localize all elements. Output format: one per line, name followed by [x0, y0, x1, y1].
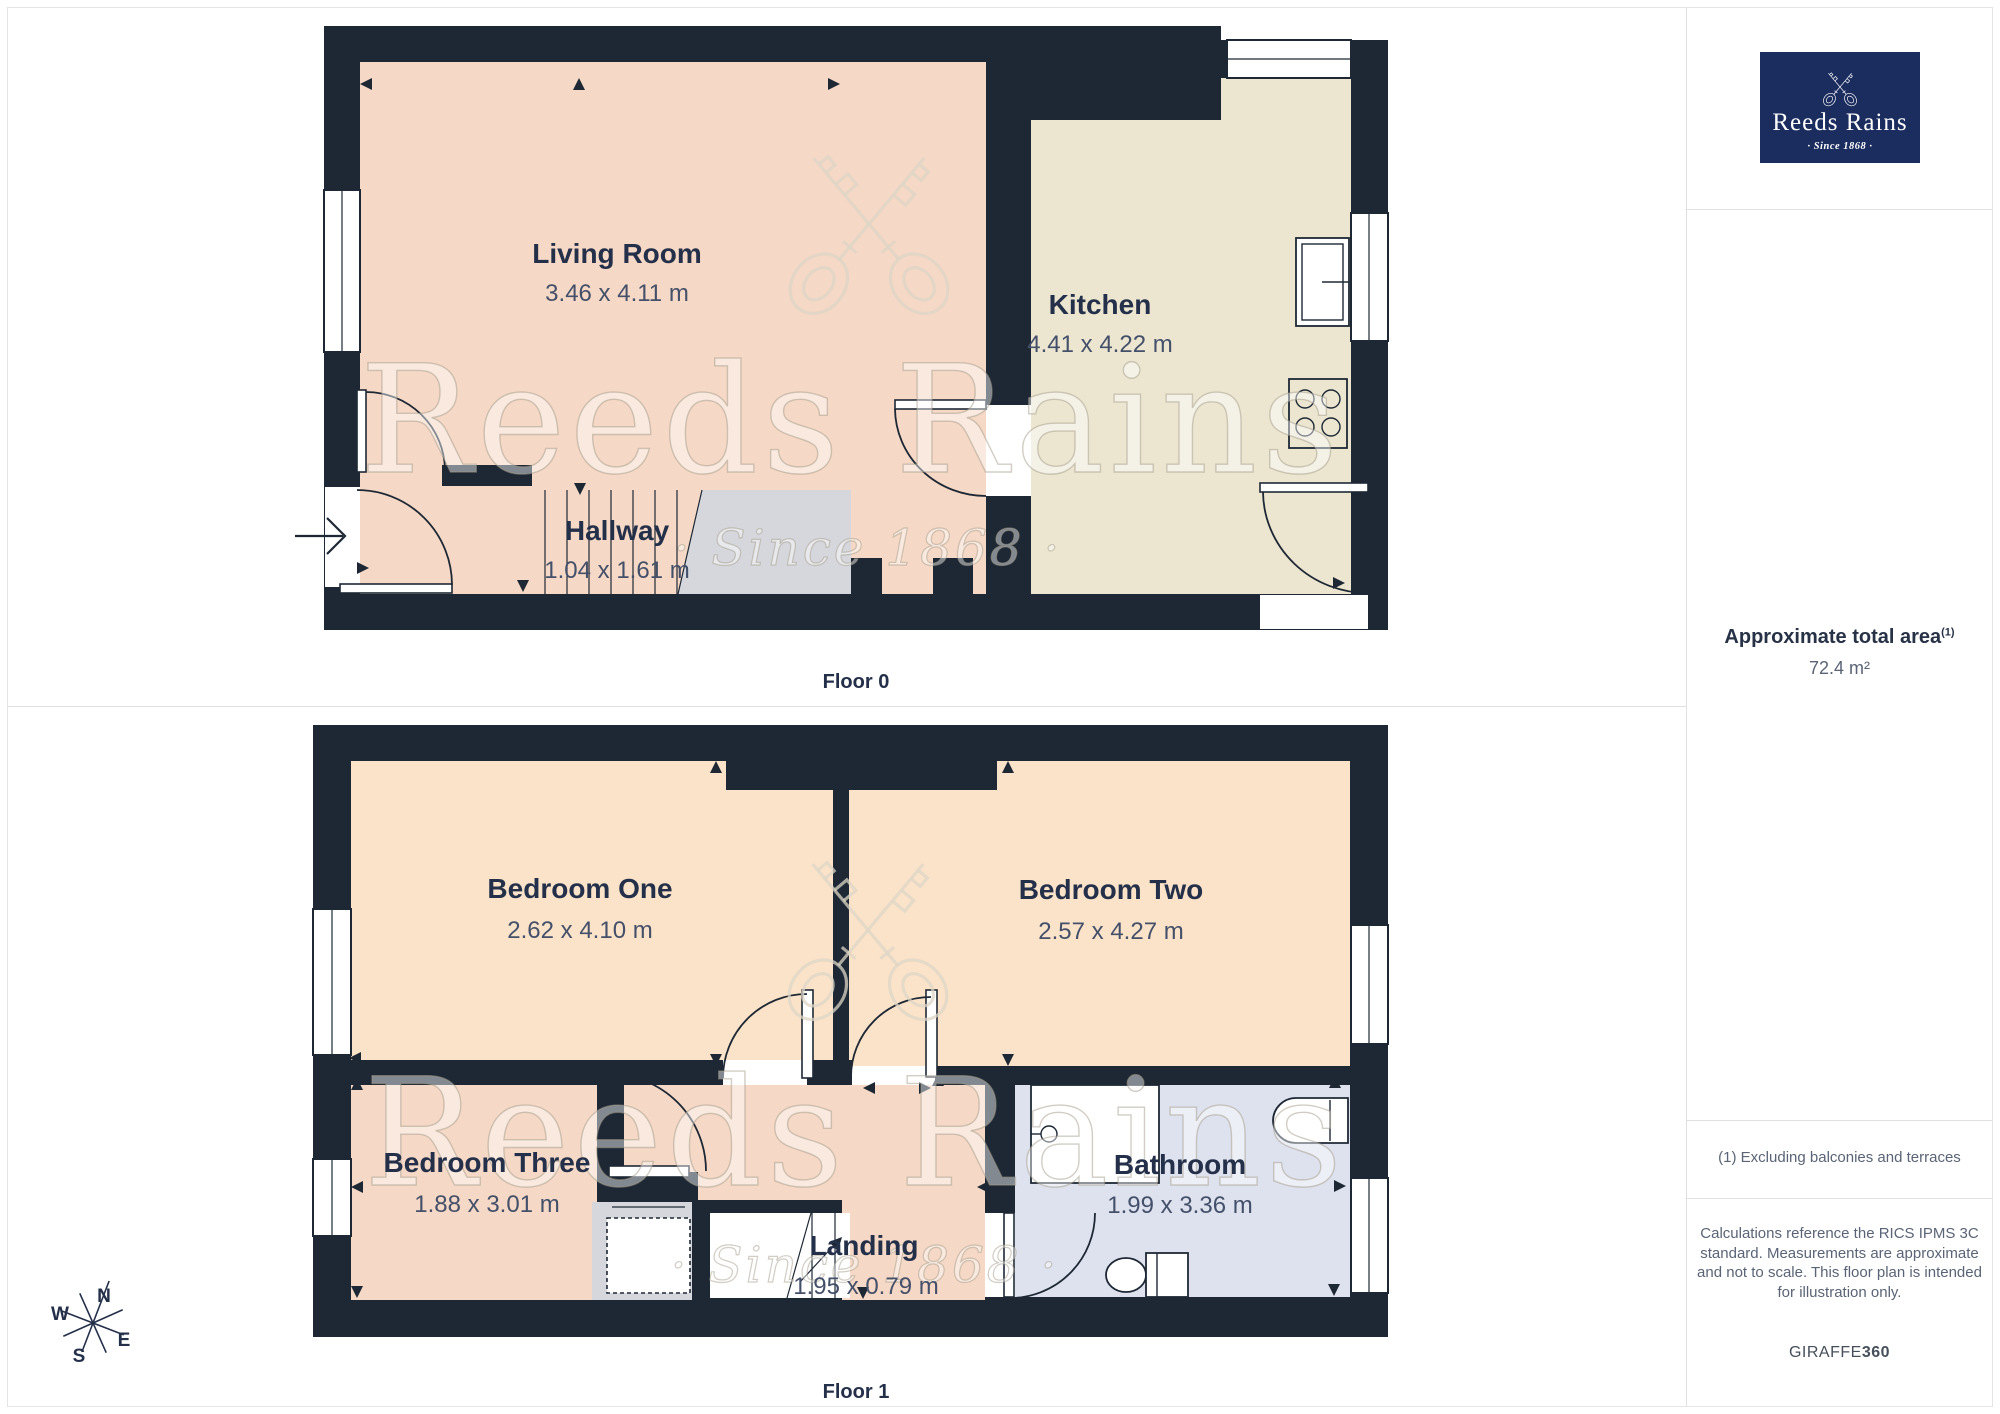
compass-e: E — [118, 1330, 131, 1351]
disclaimer-text: Calculations reference the RICS IPMS 3C … — [1692, 1224, 1987, 1302]
floorplans-canvas: Reeds Rains · Since 1868 · Living Room 3… — [0, 0, 1686, 1414]
giraffe360-name: GIRAFFE — [1789, 1344, 1862, 1361]
room-label: Bedroom Two — [1019, 874, 1204, 905]
toilet — [1106, 1253, 1188, 1297]
sidebar-divider — [1686, 8, 1687, 1406]
room-dims: 1.04 x 1.61 m — [544, 557, 689, 584]
room-dims: 1.99 x 3.36 m — [1107, 1192, 1252, 1219]
room-dims: 3.46 x 4.11 m — [545, 280, 689, 307]
watermark-brand-text: Reeds Rains — [360, 334, 1343, 508]
room-dims: 2.62 x 4.10 m — [507, 917, 652, 944]
compass-n: N — [97, 1286, 111, 1307]
giraffe360-suffix: 360 — [1862, 1344, 1890, 1361]
wall-top-block — [986, 26, 1221, 120]
floor-0-plan: Reeds Rains · Since 1868 · Living Room 3… — [295, 26, 1388, 693]
back-door-opening — [1260, 595, 1368, 629]
room-label: Bathroom — [1114, 1149, 1246, 1180]
window-bed3-left — [313, 1159, 351, 1236]
window-bathroom-right — [1351, 1178, 1388, 1293]
room-label: Kitchen — [1049, 289, 1152, 320]
room-label: Hallway — [565, 515, 670, 546]
total-area-value: 72.4 m² — [1687, 658, 1992, 679]
sidebar-separator — [1687, 1198, 1992, 1199]
room-dims: 1.88 x 3.01 m — [414, 1191, 559, 1218]
floor-panels-divider — [8, 706, 1686, 707]
floorplan-page: Reeds Rains · Since 1868 · Living Room 3… — [0, 0, 2000, 1414]
compass-s: S — [73, 1346, 86, 1367]
reeds-rains-logo: Reeds Rains · Since 1868 · — [1760, 52, 1920, 163]
giraffe360-brand: GIRAFFE360 — [1687, 1344, 1992, 1362]
sidebar-separator — [1687, 209, 1992, 210]
logo-brand-text: Reeds Rains — [1772, 110, 1907, 135]
chimney-breast — [726, 761, 997, 790]
total-area-title-text: Approximate total area — [1724, 626, 1941, 648]
room-label: Bedroom One — [487, 873, 672, 904]
wall-bedroom-divider — [833, 761, 849, 1060]
balconies-footnote: (1) Excluding balconies and terraces — [1687, 1149, 1992, 1166]
room-label: Bedroom Three — [384, 1147, 591, 1178]
total-area-title: Approximate total area(1) — [1687, 626, 1992, 649]
room-dims: 2.57 x 4.27 m — [1038, 918, 1183, 945]
room-dims: 4.41 x 4.22 m — [1027, 331, 1172, 358]
window-bed2-right — [1351, 925, 1388, 1044]
compass-rose: N W E S — [51, 1269, 140, 1367]
floor-1-plan: Reeds Rains · Since 1868 · Bedroom One 2… — [313, 725, 1388, 1403]
window-kitchen-top — [1227, 40, 1351, 78]
sidebar-separator — [1687, 1120, 1992, 1121]
room-label: Landing — [810, 1230, 919, 1261]
total-area-footnote-marker: (1) — [1941, 626, 1954, 638]
logo-since-text: · Since 1868 · — [1807, 141, 1872, 152]
watermark-since-text: · Since 1868 · — [674, 519, 1063, 577]
window-living-left — [324, 190, 360, 352]
crossed-keys-icon — [1813, 64, 1867, 108]
kitchen-sink — [1296, 238, 1349, 326]
window-bed1-left — [313, 909, 351, 1055]
room-label: Living Room — [532, 238, 702, 269]
floor-0-caption: Floor 0 — [823, 671, 890, 693]
floor-1-caption: Floor 1 — [823, 1381, 890, 1403]
room-floor-bedroom-one — [351, 761, 834, 1060]
room-dims: 1.95 x 0.79 m — [793, 1273, 938, 1300]
compass-w: W — [51, 1304, 69, 1325]
window-kitchen-right — [1351, 213, 1388, 341]
